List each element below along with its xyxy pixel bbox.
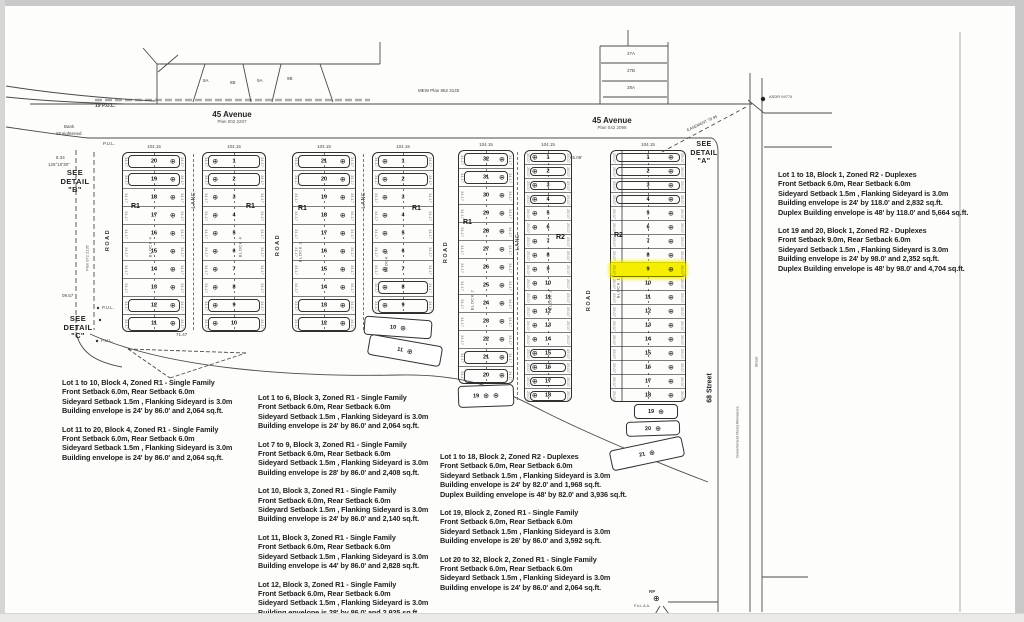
avenue-label-left: 45 Avenue Plan 002 2207 — [192, 110, 272, 124]
lot-row: 34.179⊕34.17 — [203, 297, 265, 315]
lot-row: 25.079⊕25.07 — [525, 263, 571, 277]
notes-block2: Lot 1 to 18, Block 2, Zoned R2 - Duplexe… — [440, 452, 625, 601]
survey-marker-icon: ⊕ — [212, 302, 218, 309]
gov-road-label: Government Road Allowance — [735, 406, 740, 458]
survey-marker-icon: ⊕ — [170, 158, 176, 165]
lot-number: 1 — [232, 159, 235, 165]
lot-dim: 34.17 — [350, 319, 354, 329]
top-lot-label: 27B — [627, 68, 635, 73]
survey-marker-icon: ⊕ — [668, 308, 674, 315]
zoning-note-line: Building envelope is 28' by 86.0' and 2,… — [258, 468, 443, 477]
lot-dim: 25.07 — [680, 236, 684, 246]
notes-block3: Lot 1 to 6, Block 3, Zoned R1 - Single F… — [258, 393, 443, 622]
lot-dim: 34.17 — [180, 246, 184, 256]
survey-marker-icon: ⊕ — [532, 294, 538, 301]
lot-number: 15 — [545, 351, 551, 357]
lot-row: 25.078⊕25.07 — [525, 249, 571, 263]
survey-marker-icon: ⊕ — [532, 378, 538, 385]
lot-row: 34.1720⊕34.17 — [123, 153, 185, 171]
zoning-note: Lot 1 to 18, Block 1, Zoned R2 - Duplexe… — [778, 170, 1013, 217]
dim-label: 71.47 — [176, 332, 187, 337]
lot-dim: 25.07 — [680, 222, 684, 232]
dim-label: 104.15 — [147, 144, 161, 149]
pulaa-label: P.U.L.A.A. — [634, 604, 650, 608]
survey-marker-icon: ⊕ — [340, 194, 346, 201]
lot-dim: 25.07 — [566, 222, 570, 232]
lot-row: 34.1713⊕34.17 — [293, 297, 355, 315]
lot-dim: 34.17 — [428, 301, 432, 311]
lot-dim: 34.17 — [350, 300, 354, 310]
lot-number: 8 — [546, 253, 549, 259]
lot-dim: 34.17 — [180, 192, 184, 202]
lot-dim: 25.07 — [680, 194, 684, 204]
lot-dim: 25.07 — [612, 362, 616, 372]
survey-marker-icon: ⊕ — [499, 246, 505, 253]
zoning-note-line: Duplex Building envelope is 48' by 82.0'… — [440, 490, 625, 499]
lot-dim: 34.17 — [428, 210, 432, 220]
survey-marker-icon: ⊕ — [382, 284, 388, 291]
lot-dim: 25.07 — [566, 194, 570, 204]
zoning-note-line: Building envelope is 24' by 86.0' and 2,… — [440, 583, 625, 592]
survey-marker-icon: ⊕ — [668, 294, 674, 301]
survey-marker-icon: ⊕ — [668, 168, 674, 175]
zoning-note: Lot 20 to 32, Block 2, Zoned R1 - Single… — [440, 555, 625, 593]
survey-marker-icon: ⊕ — [532, 224, 538, 231]
lot-dim: 25.07 — [526, 292, 530, 302]
lot-dim: 25.07 — [566, 180, 570, 190]
lot-dim: 34.17 — [460, 334, 464, 344]
lot-dim: 25.07 — [612, 152, 616, 162]
lot-number: 29 — [483, 211, 489, 217]
lot-dim: 25.07 — [612, 180, 616, 190]
zoning-note-line: Front Setback 6.0m, Rear Setback 6.0m — [258, 449, 443, 458]
lot-dim: 34.17 — [374, 282, 378, 292]
lot-row: 34.1717⊕34.17 — [293, 225, 355, 243]
zoning-note-line: Building envelope is 24' by 118.0' and 2… — [778, 198, 1013, 207]
survey-marker-icon: ⊕ — [382, 176, 388, 183]
lot-dim: 34.17 — [294, 174, 298, 184]
lot-row: 25.078⊕25.07 — [611, 249, 685, 263]
lot-number: 11 — [151, 321, 157, 327]
zone-label: R1 — [246, 203, 255, 210]
see-detail-a: SEE DETAIL "A" — [682, 141, 726, 167]
lane-label: LANE — [191, 191, 197, 208]
survey-marker-icon: ⊕ — [499, 264, 505, 271]
lot-dim: 25.07 — [680, 250, 684, 260]
lot-number: 4 — [546, 197, 549, 203]
see-detail-c: SEE DETAIL "C" — [56, 315, 100, 341]
lot-dim: 34.17 — [204, 300, 208, 310]
plat-scan: 34.1720⊕34.1734.1719⊕34.1734.1718⊕34.173… — [0, 0, 1024, 622]
survey-marker-icon: ⊕ — [668, 364, 674, 371]
survey-marker-icon: ⊕ — [668, 238, 674, 245]
lot-dim: 25.07 — [566, 391, 570, 401]
lot-dim: 25.07 — [680, 320, 684, 330]
lane-label: LANE — [361, 191, 367, 208]
zoning-note-line: Front Setback 6.0m, Rear Setback 6.0m — [258, 542, 443, 551]
survey-marker-icon: ⊕ — [170, 266, 176, 273]
scan-border-bottom — [0, 613, 1024, 622]
lot-number: 5 — [546, 211, 549, 217]
top-lot-label: 27A — [627, 51, 635, 56]
lot-number: 7 — [401, 267, 404, 273]
lot-dim: 25.07 — [612, 222, 616, 232]
lot-row: 25.071⊕25.07 — [611, 151, 685, 165]
survey-marker-icon: ⊕ — [170, 194, 176, 201]
lot-row: 25.0716⊕25.07 — [525, 361, 571, 375]
lot-dim: 25.07 — [526, 348, 530, 358]
lot-number: 25 — [483, 283, 489, 289]
zoning-note-line: Front Setback 6.0m, Rear Setback 6.0m — [258, 589, 443, 598]
lot-dim: 25.07 — [680, 278, 684, 288]
block4-left-column: 34.1720⊕34.1734.1719⊕34.1734.1718⊕34.173… — [122, 152, 186, 332]
top-lot-label: 8A — [203, 78, 209, 83]
zoning-note-line: Lot 1 to 10, Block 4, Zoned R1 - Single … — [62, 378, 262, 387]
zoning-note-line: Sideyard Setback 1.5m , Flanking Sideyar… — [258, 412, 443, 421]
survey-marker-icon: ⊕ — [532, 308, 538, 315]
lot-dim: 34.17 — [508, 154, 512, 164]
lot-number: 18 — [645, 393, 651, 399]
lot-dim: 25.07 — [612, 391, 616, 401]
zoning-note-line: Lot 20 to 32, Block 2, Zoned R1 - Single… — [440, 555, 625, 564]
zoning-note-line: Lot 1 to 6, Block 3, Zoned R1 - Single F… — [258, 393, 443, 402]
lot-dim: 34.17 — [460, 244, 464, 254]
survey-marker-icon: ⊕ — [340, 302, 346, 309]
lot-number: 6 — [401, 249, 404, 255]
block-label: BLOCK 3 — [298, 242, 303, 262]
lot-dim: 25.07 — [680, 208, 684, 218]
lot-row: 34.1713⊕34.17 — [123, 279, 185, 297]
lot-dim: 25.07 — [566, 320, 570, 330]
lot-number: 19 — [473, 393, 479, 399]
zone-label: R2 — [614, 232, 623, 239]
plan-label: Plan 972 2135 — [85, 245, 90, 271]
lot-row: 34.176⊕34.17 — [203, 243, 265, 261]
lot-dim: 34.17 — [260, 246, 264, 256]
lot-number: 10 — [645, 281, 651, 287]
road-label: ROAD — [443, 241, 449, 263]
lot-dim: 25.07 — [612, 376, 616, 386]
zoning-note-line: Lot 7 to 9, Block 3, Zoned R1 - Single F… — [258, 440, 443, 449]
avenue-label-right: 45 Avenue Plan 042 2098 — [572, 116, 652, 130]
zoning-note: Lot 11, Block 3, Zoned R1 - Single Famil… — [258, 533, 443, 571]
survey-marker-icon: ⊕ — [170, 302, 176, 309]
survey-marker-icon: ⊕ — [382, 230, 388, 237]
survey-marker-icon: ⊕ — [532, 182, 538, 189]
lot-number: 13 — [321, 303, 327, 309]
lot-dim: 25.07 — [680, 362, 684, 372]
lot-dim: 25.07 — [680, 348, 684, 358]
highlighted-lot: 25.079⊕25.07 — [611, 263, 685, 277]
lot-number: 7 — [646, 239, 649, 245]
lot-dim: 34.17 — [350, 246, 354, 256]
lot-number: 17 — [645, 379, 651, 385]
survey-marker-icon: ⊕ — [340, 212, 346, 219]
zoning-note: Lot 19 and 20, Block 1, Zoned R2 - Duple… — [778, 226, 1013, 273]
lot-number: 14 — [545, 337, 551, 343]
survey-marker-icon: ⊕ — [340, 158, 346, 165]
lot-dim: 25.07 — [566, 292, 570, 302]
lot-number: 13 — [151, 285, 157, 291]
lot-dim: 34.17 — [460, 262, 464, 272]
survey-marker-icon: ⊕ — [212, 230, 218, 237]
zoning-note-line: Front Setback 9.0m, Rear Setback 6.0m — [778, 235, 1013, 244]
lot-dim: 34.17 — [508, 190, 512, 200]
lot-dim: 25.07 — [526, 362, 530, 372]
survey-marker-icon: ⊕ — [382, 158, 388, 165]
dim-label: 104.15 — [227, 144, 241, 149]
lot-dim: 34.17 — [460, 226, 464, 236]
lot-block1-20: 20 ⊕ — [626, 420, 680, 437]
lot-row: 25.076⊕25.07 — [525, 221, 571, 235]
zoning-note-line: Front Setback 6.0m, Rear Setback 6.0m — [62, 387, 262, 396]
survey-marker-icon: ⊕ — [532, 280, 538, 287]
lot-dim: 34.17 — [180, 174, 184, 184]
lot-dim: 34.17 — [428, 228, 432, 238]
lot-number: 2 — [646, 169, 649, 175]
zoning-note: Lot 1 to 18, Block 2, Zoned R2 - Duplexe… — [440, 452, 625, 499]
lot-row: 25.075⊕25.07 — [525, 207, 571, 221]
lot-row: 34.1715⊕34.17 — [293, 261, 355, 279]
lot-dim: 34.17 — [508, 334, 512, 344]
lot-number: 10 — [545, 281, 551, 287]
lot-number: 14 — [321, 285, 327, 291]
lot-dim: 25.07 — [566, 278, 570, 288]
lot-dim: 25.07 — [526, 194, 530, 204]
survey-marker-icon: ⊕ — [382, 194, 388, 201]
zoning-note-line: Sideyard Setback 1.5m , Flanking Sideyar… — [62, 397, 262, 406]
lot-dim: 25.07 — [526, 208, 530, 218]
lot-dim: 34.17 — [260, 210, 264, 220]
lot-row: 34.1720⊕34.17 — [459, 367, 513, 385]
survey-marker-icon: ⊕ — [170, 321, 176, 328]
lot-number: 6 — [546, 225, 549, 231]
survey-marker-icon: ⊕ — [499, 318, 505, 325]
lot-dim: 25.07 — [680, 391, 684, 401]
lot-number: 1 — [401, 159, 404, 165]
survey-marker-icon: ⊕ — [668, 196, 674, 203]
lot-number: 20 — [151, 159, 157, 165]
zoning-note-line: Sideyard Setback 1.5m , Flanking Sideyar… — [440, 527, 625, 536]
lot-dim: 34.17 — [294, 300, 298, 310]
zoning-note-line: Sideyard Setback 1.5m , Flanking Sideyar… — [258, 458, 443, 467]
lot-number: 11 — [645, 295, 651, 301]
lot-row: 34.1720⊕34.17 — [293, 171, 355, 189]
lot-row: 34.173⊕34.17 — [373, 189, 433, 207]
lot-number: 20 — [645, 426, 651, 432]
zone-label: R1 — [298, 205, 307, 212]
top-lot-label: 9A — [257, 78, 263, 83]
lot-dim: 34.17 — [204, 192, 208, 202]
survey-marker-icon: ⊕ — [340, 248, 346, 255]
lot-number: 17 — [321, 231, 327, 237]
lot-dim: 34.17 — [180, 319, 184, 329]
lot-row: 34.1731⊕34.17 — [459, 169, 513, 187]
lot-row: 25.0718⊕25.07 — [611, 389, 685, 403]
lot-dim: 25.07 — [612, 194, 616, 204]
angle-dim: 8.34 — [56, 155, 65, 160]
lot-number: 9 — [646, 267, 649, 273]
lot-row: 25.075⊕25.07 — [611, 207, 685, 221]
lot-dim: 25.07 — [526, 180, 530, 190]
lot-dim: 25.07 — [612, 264, 616, 274]
zoning-note-line: Front Setback 6.0m, Rear Setback 6.0m — [440, 517, 625, 526]
lot-row: 34.1712⊕34.17 — [293, 315, 355, 333]
lot-number: 12 — [321, 321, 327, 327]
lot-number: 4 — [646, 197, 649, 203]
lot-dim: 25.07 — [526, 222, 530, 232]
lot-dim: 34.17 — [180, 300, 184, 310]
lot-number: 20 — [321, 177, 327, 183]
lot-dim: 34.17 — [294, 282, 298, 292]
zoning-note: Lot 1 to 10, Block 4, Zoned R1 - Single … — [62, 378, 262, 416]
lot-number: 31 — [483, 175, 489, 181]
lot-row: 34.1719⊕34.17 — [123, 171, 185, 189]
lot-number: 13 — [545, 323, 551, 329]
lot-number: 1 — [646, 155, 649, 161]
scan-border-left — [0, 0, 5, 622]
survey-marker-icon: ⊕ — [170, 248, 176, 255]
survey-marker-icon: ⊕ — [532, 168, 538, 175]
lot-number: 17 — [545, 379, 551, 385]
lot-dim: 34.17 — [124, 228, 128, 238]
lot-dim: 34.17 — [260, 192, 264, 202]
lot-row: 34.174⊕34.17 — [203, 207, 265, 225]
lot-row: 34.1726⊕34.17 — [459, 259, 513, 277]
lot-dim: 25.07 — [612, 306, 616, 316]
lot-dim: 34.17 — [180, 264, 184, 274]
lot-dim: 34.17 — [508, 226, 512, 236]
lot-dim: 25.07 — [612, 348, 616, 358]
zoning-note-line: Lot 11, Block 3, Zoned R1 - Single Famil… — [258, 533, 443, 542]
zoning-note-line: Sideyard Setback 1.5m , Flanking Sideyar… — [62, 443, 262, 452]
survey-marker-icon: ⊕ — [668, 210, 674, 217]
survey-marker-icon: ⊕ — [668, 224, 674, 231]
lot-dim: 34.17 — [428, 192, 432, 202]
lot-dim: 34.17 — [260, 156, 264, 166]
zoning-note-line: Front Setback 6.0m, Rear Setback 6.0m — [62, 434, 262, 443]
lot-dim: 25.07 — [680, 306, 684, 316]
lot-number: 19 — [648, 409, 654, 415]
zoning-note-line: Sideyard Setback 1.5m , Flanking Sideyar… — [258, 505, 443, 514]
block2-right-column: 25.071⊕25.0725.072⊕25.0725.073⊕25.0725.0… — [524, 150, 572, 402]
lot-number: 8 — [401, 285, 404, 291]
lot-dim: 34.17 — [294, 156, 298, 166]
dim-label: 104.15 — [396, 144, 410, 149]
lot-dim: 34.17 — [460, 190, 464, 200]
lot-dim: 34.17 — [124, 319, 128, 329]
lot-dim: 34.17 — [508, 371, 512, 381]
survey-marker-icon: ⊕ — [668, 350, 674, 357]
zoning-note-line: Front Setback 6.0m, Rear Setback 6.0m — [440, 461, 625, 470]
block-label: BLOCK 4 — [148, 237, 153, 257]
pul-19-label: 19 P.U.L. — [95, 103, 115, 109]
block-label: BLOCK 3 — [384, 252, 389, 272]
asdr-marker-label: ASDR 94774 — [769, 95, 792, 100]
lot-row: 25.0717⊕25.07 — [611, 375, 685, 389]
plan-mew-label: MEW Plan 862 3145 — [418, 88, 459, 93]
survey-marker-icon: ⊕ — [499, 174, 505, 181]
lot-dim: 34.17 — [180, 282, 184, 292]
lot-row: 34.175⊕34.17 — [373, 225, 433, 243]
lot-dim: 34.17 — [294, 264, 298, 274]
lot-dim: 34.17 — [124, 246, 128, 256]
zoning-note-line: Sideyard Setback 1.5m , Flanking Sideyar… — [778, 189, 1013, 198]
lot-row: 25.074⊕25.07 — [525, 193, 571, 207]
lot-row: 34.1722⊕34.17 — [459, 331, 513, 349]
survey-marker-icon: ⊕ — [532, 238, 538, 245]
lot-dim: 34.17 — [374, 210, 378, 220]
zoning-note-line: Sideyard Setback 1.5m , Flanking Sideyar… — [258, 552, 443, 561]
lot-dim: 34.17 — [460, 172, 464, 182]
lot-dim: 25.07 — [612, 208, 616, 218]
lot-dim: 25.07 — [612, 334, 616, 344]
lot-dim: 25.07 — [526, 152, 530, 162]
lot-dim: 25.07 — [566, 264, 570, 274]
lot-row: 34.1711⊕34.17 — [123, 315, 185, 333]
lot-dim: 34.17 — [350, 228, 354, 238]
zone-label: R1 — [463, 219, 472, 226]
zoning-note-line: Building envelope is 24' by 86.0' and 2,… — [258, 514, 443, 523]
lot-dim: 34.17 — [460, 208, 464, 218]
survey-marker-icon: ⊕ — [499, 300, 505, 307]
survey-marker-icon: ⊕ — [668, 336, 674, 343]
lot-row: 34.1721⊕34.17 — [293, 153, 355, 171]
lot-dim: 34.17 — [124, 264, 128, 274]
lot-row: 34.172⊕34.17 — [203, 171, 265, 189]
lot-dim: 34.17 — [180, 228, 184, 238]
lot-dim: 34.17 — [460, 316, 464, 326]
lot-row: 25.0713⊕25.07 — [525, 319, 571, 333]
block-label: BLOCK 2 — [548, 290, 553, 310]
lot-row: 34.177⊕34.17 — [203, 261, 265, 279]
lot-dim: 25.07 — [526, 320, 530, 330]
lot-number: 5 — [232, 231, 235, 237]
lot-row: 25.0711⊕25.07 — [611, 291, 685, 305]
survey-marker-icon: ⊕ — [668, 182, 674, 189]
lot-dim: 34.17 — [294, 228, 298, 238]
zoning-note-line: Front Setback 6.0m, Rear Setback 6.0m — [440, 564, 625, 573]
lot-row: 25.073⊕25.07 — [611, 179, 685, 193]
lot-number: 21 — [639, 451, 646, 458]
survey-marker-icon: ⊕ — [212, 212, 218, 219]
lane-centerline — [363, 154, 364, 330]
lot-number: 12 — [151, 303, 157, 309]
zoning-note-line: Duplex Building envelope is 48' by 98.0'… — [778, 264, 1013, 273]
zoning-note: Lot 19, Block 2, Zoned R1 - Single Famil… — [440, 508, 625, 546]
block-label: BLOCK 4 — [238, 237, 243, 257]
lot-number: 17 — [151, 213, 157, 219]
lot-dim: 34.17 — [180, 210, 184, 220]
scan-border-right — [1015, 0, 1024, 622]
block4-right-column: 34.171⊕34.1734.172⊕34.1734.173⊕34.1734.1… — [202, 152, 266, 332]
survey-marker-icon: ⊕ — [340, 321, 346, 328]
lot-number: 9 — [401, 303, 404, 309]
survey-marker-icon: ⊕ — [400, 324, 406, 332]
lot-dim: 34.17 — [260, 282, 264, 292]
lot-row: 25.0713⊕25.07 — [611, 319, 685, 333]
survey-marker-icon: ⊕ — [340, 266, 346, 273]
lot-row: 25.072⊕25.07 — [611, 165, 685, 179]
dim-label: 104.15 — [317, 144, 331, 149]
lot-dim: 34.17 — [260, 300, 264, 310]
lot-number: 8 — [646, 253, 649, 259]
lane-centerline — [517, 152, 518, 400]
lot-dim: 34.17 — [294, 319, 298, 329]
lot-dim: 34.17 — [204, 228, 208, 238]
lot-number: 12 — [645, 309, 651, 315]
lot-dim: 34.17 — [508, 352, 512, 362]
